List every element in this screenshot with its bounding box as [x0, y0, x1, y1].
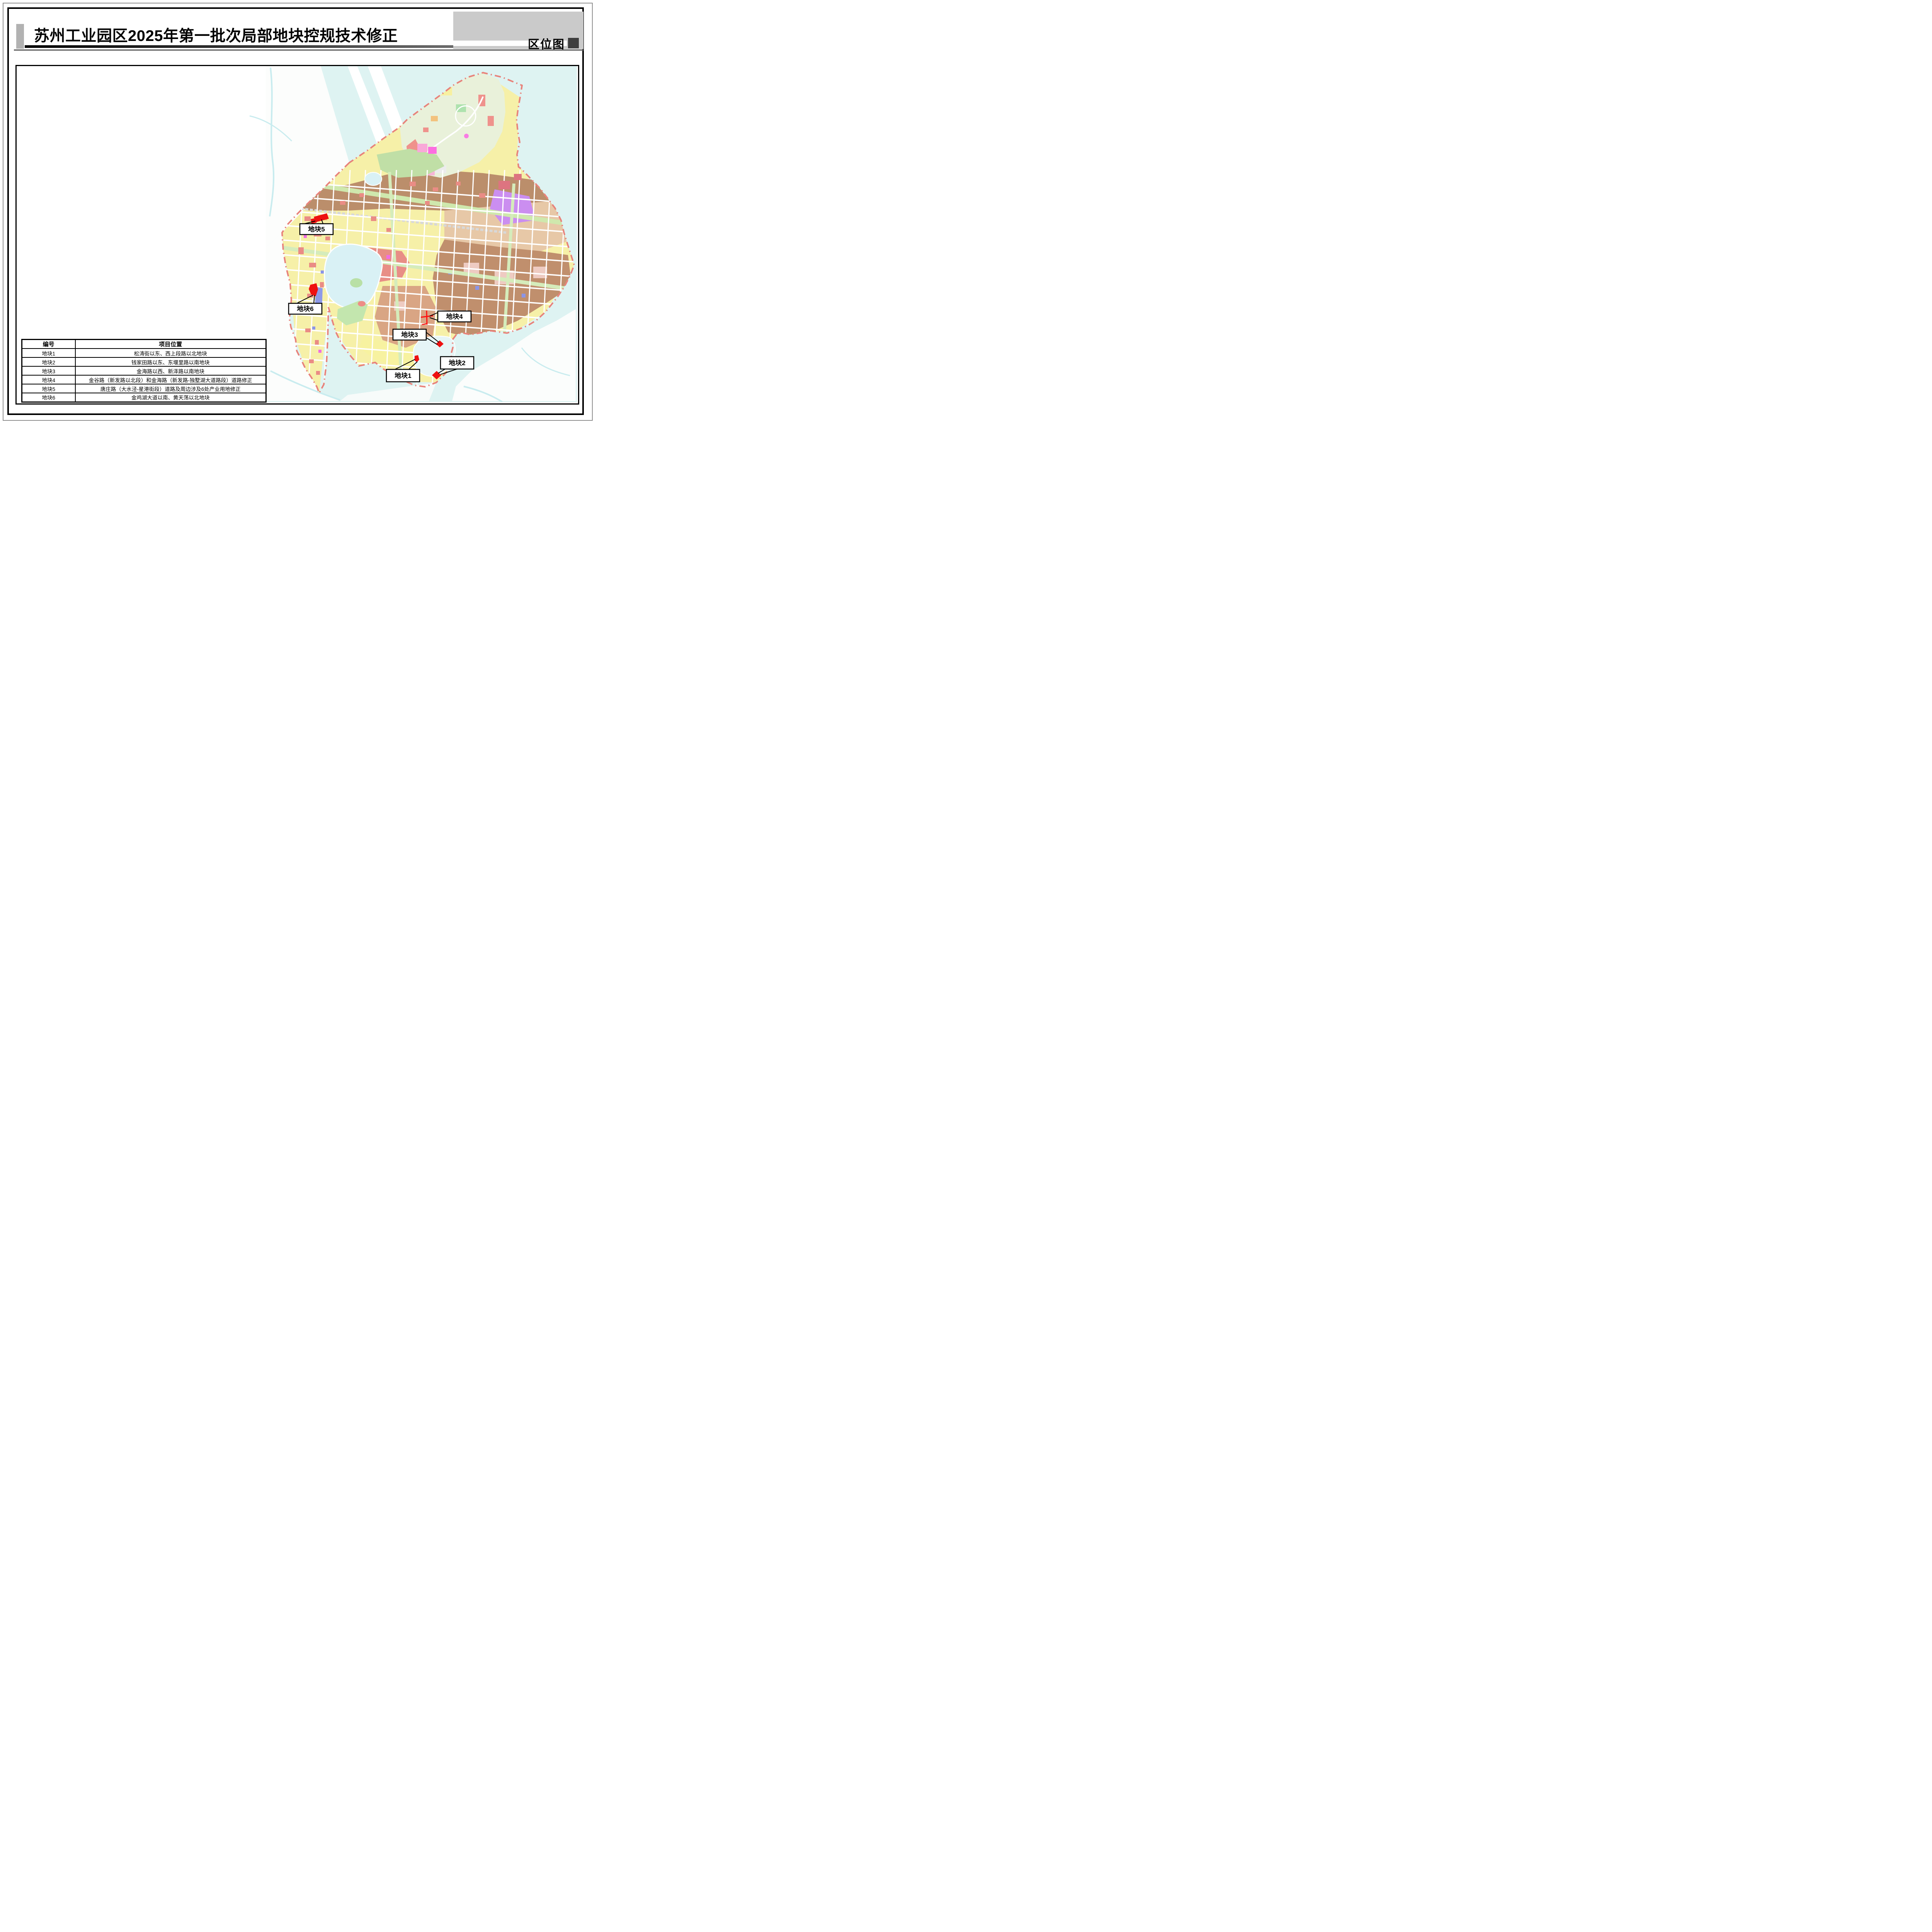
plot-location: 金谷路（新发路以北段）和金海路（新发路-独墅湖大道路段）道路修正: [75, 375, 266, 384]
title-underline-bar: [25, 45, 453, 48]
plot-id: 地块2: [22, 357, 75, 366]
sheet-type-label: 区位图: [528, 35, 565, 52]
table-header-row: 编号 项目位置: [22, 340, 266, 349]
plot-callout-label-2: 地块2: [449, 359, 465, 367]
col-header-id: 编号: [22, 340, 75, 349]
plan-sheet-page: 苏州工业园区2025年第一批次局部地块控规技术修正 区位图: [0, 0, 598, 423]
plot-id: 地块6: [22, 393, 75, 402]
plot-id: 地块3: [22, 366, 75, 375]
plot-location: 松涛街以东、西上段路以北地块: [75, 349, 266, 357]
plot-callout-label-6: 地块6: [297, 305, 313, 313]
plot-location: 钱家田路以东、东堰里路以南地块: [75, 357, 266, 366]
table-row: 地块5 唐庄路（大水泾-星港街段）道路及周边涉及6处产业用地修正: [22, 384, 266, 393]
plot-callout-label-3: 地块3: [401, 331, 418, 338]
title-underline-thin: [14, 49, 583, 51]
plot-callout-label-4: 地块4: [446, 313, 463, 320]
plot-location: 金鸡湖大道以南、黄天荡以北地块: [75, 393, 266, 402]
table-row: 地块4 金谷路（新发路以北段）和金海路（新发路-独墅湖大道路段）道路修正: [22, 375, 266, 384]
col-header-location: 项目位置: [75, 340, 266, 349]
plot-id: 地块4: [22, 375, 75, 384]
corner-dark-square: [568, 38, 579, 48]
table-row: 地块1 松涛街以东、西上段路以北地块: [22, 349, 266, 357]
title-accent-bar: [16, 24, 24, 49]
location-table: 编号 项目位置 地块1 松涛街以东、西上段路以北地块 地块2 钱家田路以东、东堰…: [21, 339, 267, 403]
plot-id: 地块5: [22, 384, 75, 393]
plot-id: 地块1: [22, 349, 75, 357]
table-row: 地块2 钱家田路以东、东堰里路以南地块: [22, 357, 266, 366]
plot-location: 金海路以西、新泽路以南地块: [75, 366, 266, 375]
plot-callout-label-5: 地块5: [308, 225, 325, 233]
plot-callout-label-1: 地块1: [395, 372, 411, 379]
table-row: 地块6 金鸡湖大道以南、黄天荡以北地块: [22, 393, 266, 402]
table-row: 地块3 金海路以西、新泽路以南地块: [22, 366, 266, 375]
plot-location: 唐庄路（大水泾-星港街段）道路及周边涉及6处产业用地修正: [75, 384, 266, 393]
page-title: 苏州工业园区2025年第一批次局部地块控规技术修正: [34, 23, 440, 46]
